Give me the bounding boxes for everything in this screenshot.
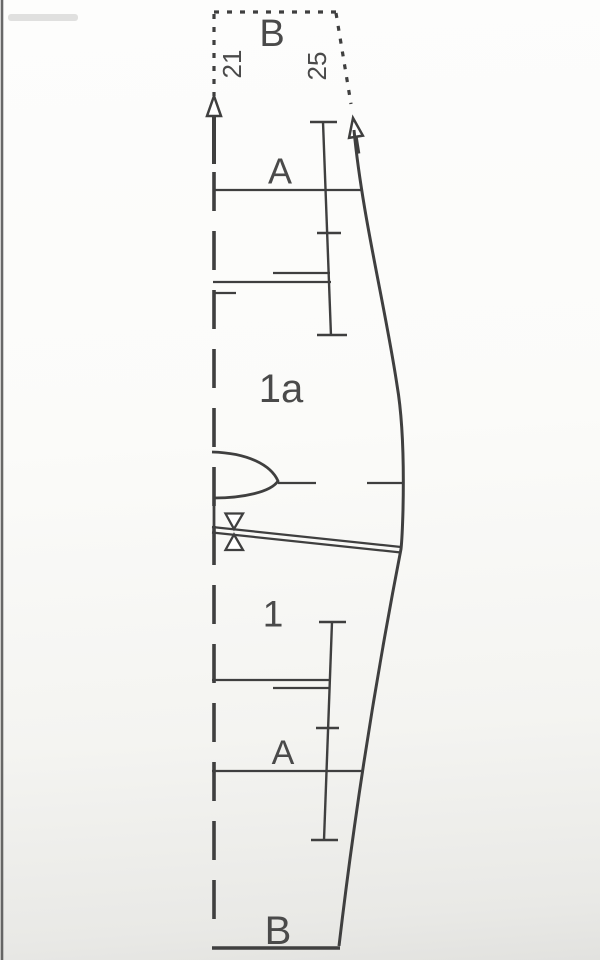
notch-triangle-up-icon bbox=[226, 535, 244, 551]
label-seam-length-25: 25 bbox=[302, 52, 332, 81]
arrow-up-icon bbox=[207, 96, 221, 116]
label-section-b-bottom: B bbox=[265, 909, 292, 953]
photo-smudge-artifact bbox=[8, 14, 78, 21]
label-piece-1: 1 bbox=[263, 594, 284, 635]
dart-curve bbox=[212, 452, 278, 498]
dotted-extension-right-line bbox=[336, 13, 351, 104]
measurement-bar-top bbox=[310, 122, 347, 336]
side-seam-edge-line bbox=[339, 130, 403, 946]
pattern-diagram: B 21 25 A 1a 1 A B bbox=[0, 0, 600, 960]
label-piece-1a: 1a bbox=[259, 367, 304, 411]
measurement-bar-bottom-line bbox=[324, 622, 332, 840]
measurement-bar-top-line bbox=[323, 122, 331, 336]
pattern-sheet: B 21 25 A 1a 1 A B bbox=[0, 0, 600, 960]
label-seam-length-21: 21 bbox=[217, 50, 247, 79]
label-a-bottom: A bbox=[272, 734, 295, 772]
label-a-top: A bbox=[268, 151, 292, 192]
notch-triangle-down-icon bbox=[226, 514, 244, 530]
label-section-b-top: B bbox=[259, 13, 284, 55]
measurement-bar-bottom bbox=[311, 622, 346, 840]
